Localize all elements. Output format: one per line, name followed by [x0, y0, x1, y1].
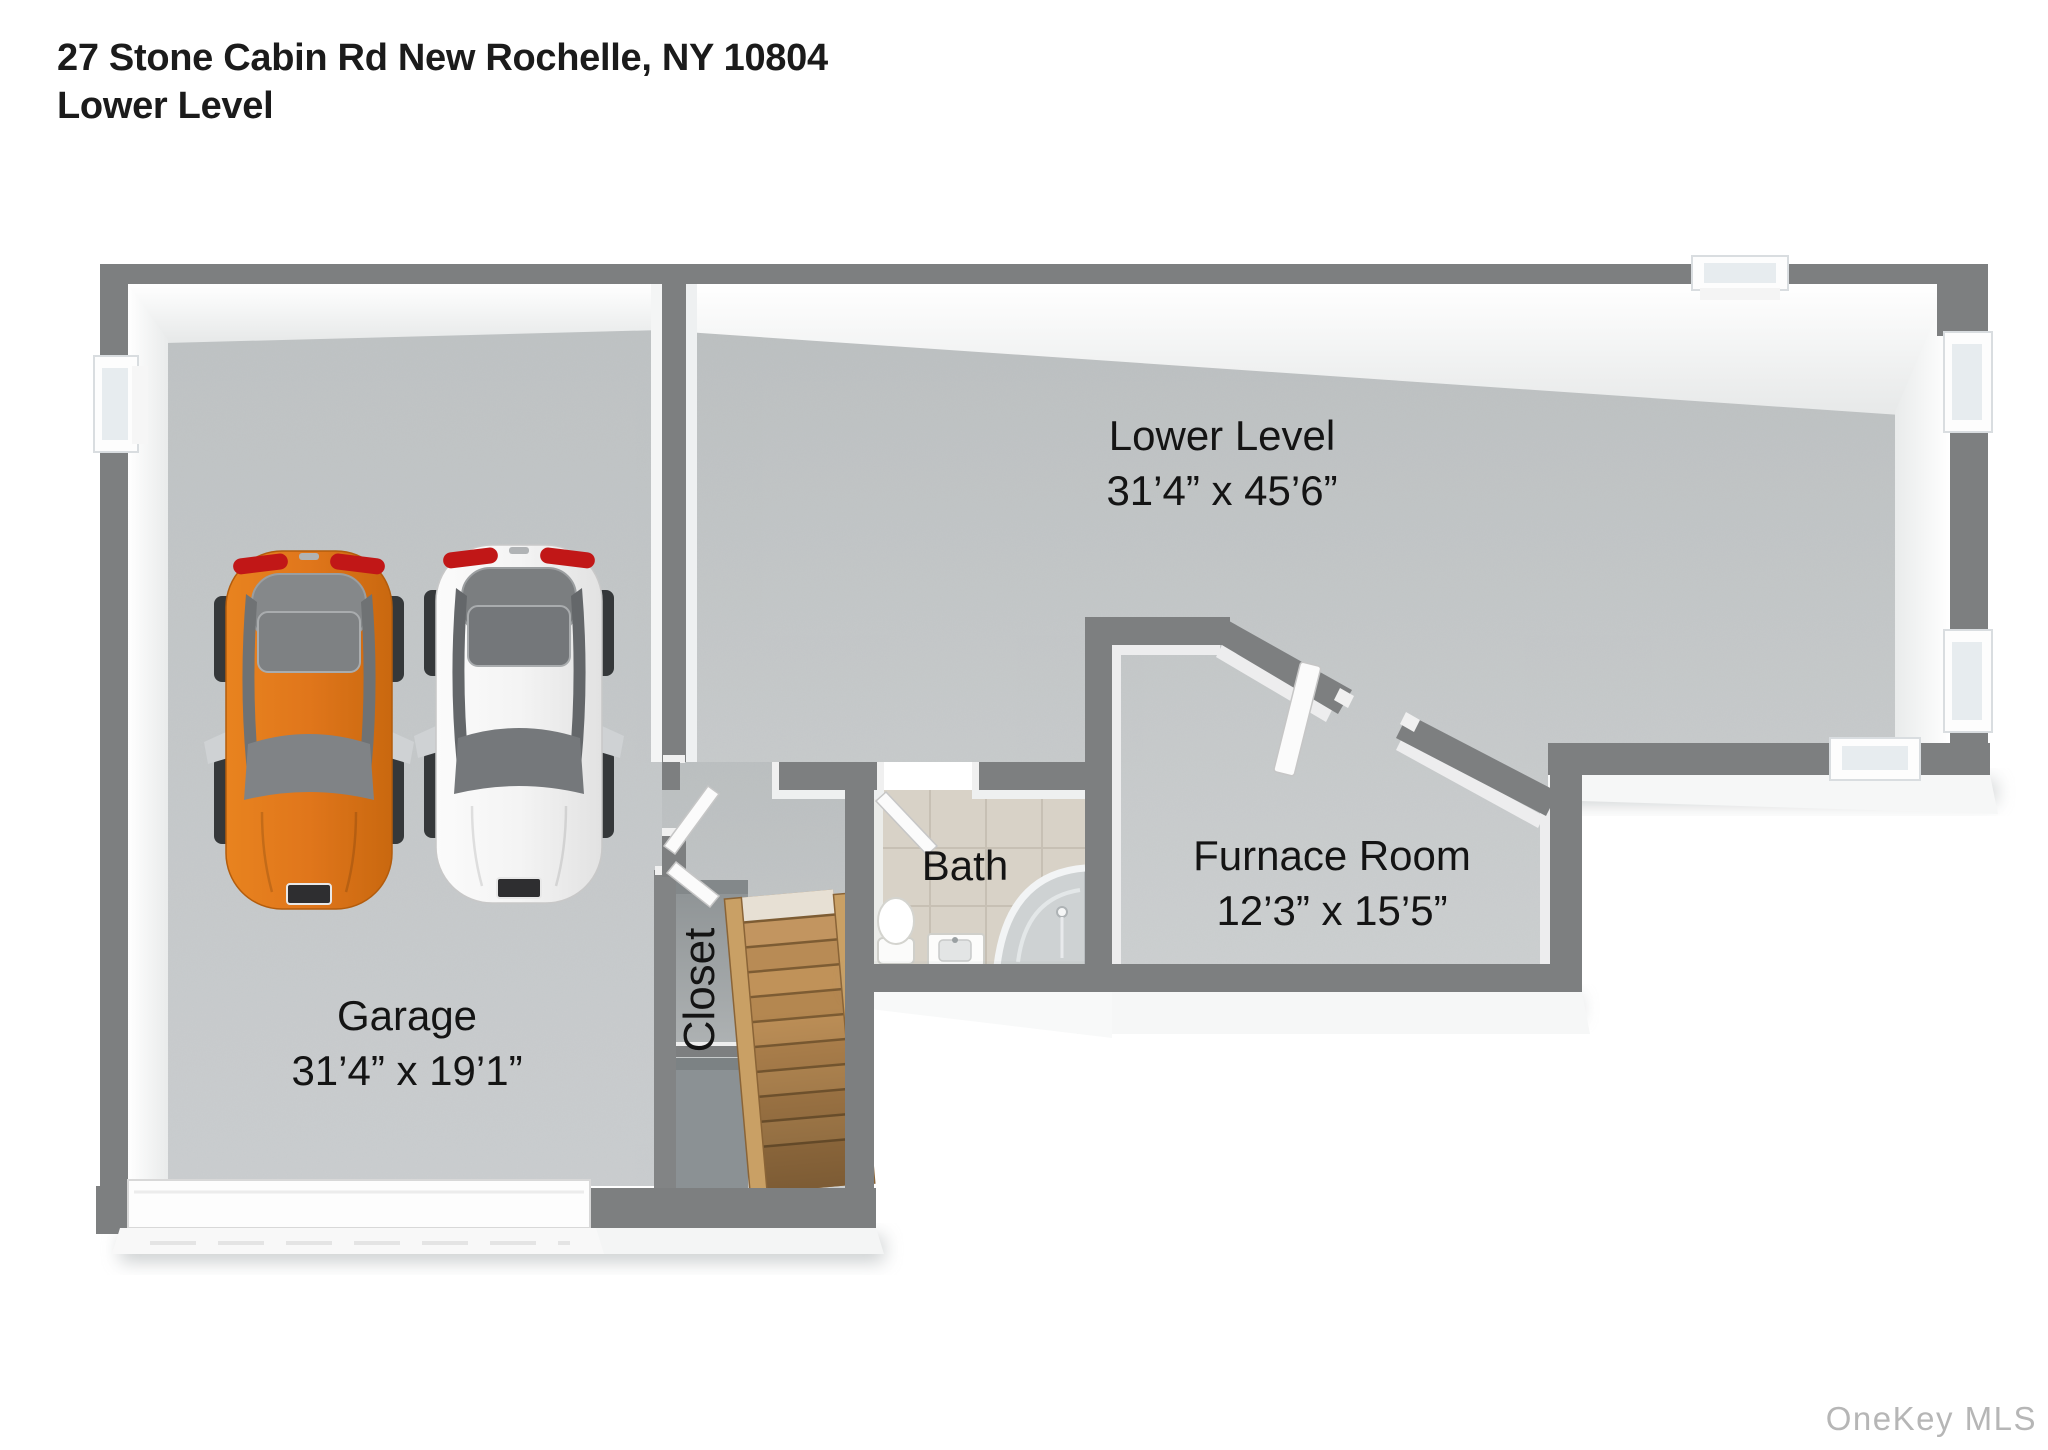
sink-vanity [928, 934, 984, 966]
orange-car [204, 551, 414, 909]
level-subtitle: Lower Level [57, 82, 828, 130]
right-window-lower [1944, 630, 1992, 732]
floor-plan-page: 27 Stone Cabin Rd New Rochelle, NY 10804… [0, 0, 2048, 1450]
title-block: 27 Stone Cabin Rd New Rochelle, NY 10804… [57, 34, 828, 130]
bath-bottom-wall [845, 964, 1112, 992]
bottom-stair-wall [588, 1188, 876, 1228]
toilet [878, 898, 914, 964]
lower-level-label: Lower Level 31’4” x 45’6” [1106, 408, 1337, 518]
bath-label: Bath [922, 838, 1008, 893]
garage-door [112, 1180, 604, 1254]
bottom-right-wall [1548, 743, 1837, 775]
floor-plan-rendering [0, 0, 2048, 1450]
garage-label: Garage 31’4” x 19’1” [291, 988, 522, 1098]
furnace-top-wall [1085, 617, 1230, 645]
furnace-room-label: Furnace Room 12’3” x 15’5” [1193, 828, 1471, 938]
room-name: Furnace Room [1193, 828, 1471, 883]
watermark: OneKey MLS [1826, 1400, 2037, 1438]
furnace-bottom-wall [1085, 964, 1582, 992]
top-window [1692, 256, 1788, 300]
address-title: 27 Stone Cabin Rd New Rochelle, NY 10804 [57, 34, 828, 82]
closet-label: Closet [675, 928, 725, 1053]
divider-wall [662, 264, 686, 762]
room-name: Garage [291, 988, 522, 1043]
room-name: Lower Level [1106, 408, 1337, 463]
white-car [414, 545, 624, 903]
furnace-left-wall [1085, 617, 1112, 992]
bottom-right-window [1830, 738, 1920, 780]
left-window [94, 356, 148, 452]
room-dimensions: 31’4” x 19’1” [291, 1043, 522, 1098]
furnace-right-wall [1550, 775, 1582, 992]
right-window-upper [1944, 332, 1992, 432]
room-name: Bath [922, 838, 1008, 893]
room-dimensions: 31’4” x 45’6” [1106, 463, 1337, 518]
room-dimensions: 12’3” x 15’5” [1193, 883, 1471, 938]
